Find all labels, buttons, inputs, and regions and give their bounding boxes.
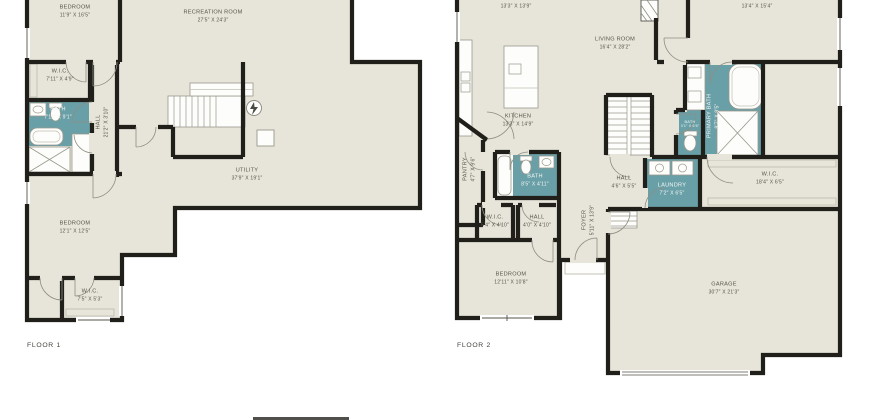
sink-icon xyxy=(30,103,46,116)
sink-icon xyxy=(539,156,554,168)
staircase-icon xyxy=(606,95,652,155)
floor1-plan xyxy=(24,0,420,323)
floor2-tag: FLOOR 2 xyxy=(457,342,491,349)
toilet-icon xyxy=(520,156,532,174)
floor2-plan xyxy=(454,0,843,377)
floor-plan-canvas xyxy=(0,0,870,420)
shower-icon xyxy=(717,111,758,155)
floor1-tag: FLOOR 1 xyxy=(27,342,61,349)
fireplace-icon xyxy=(641,0,658,21)
garage-steps-icon xyxy=(610,211,637,228)
utility-equipment-icon xyxy=(257,130,274,146)
kitchen-island xyxy=(504,46,538,108)
bathtub-icon xyxy=(729,64,762,109)
bathtub-icon xyxy=(30,128,63,145)
electrical-panel-icon xyxy=(247,101,262,116)
shower-icon xyxy=(29,147,70,172)
floorplan-stage: BEDROOM 11'9" X 16'5" RECREATION ROOM 27… xyxy=(0,0,870,420)
bathtub-icon xyxy=(496,153,513,197)
front-porch xyxy=(565,262,605,274)
toilet-icon xyxy=(684,131,697,151)
vanity-sinks xyxy=(686,63,705,110)
garage-door xyxy=(620,370,750,377)
